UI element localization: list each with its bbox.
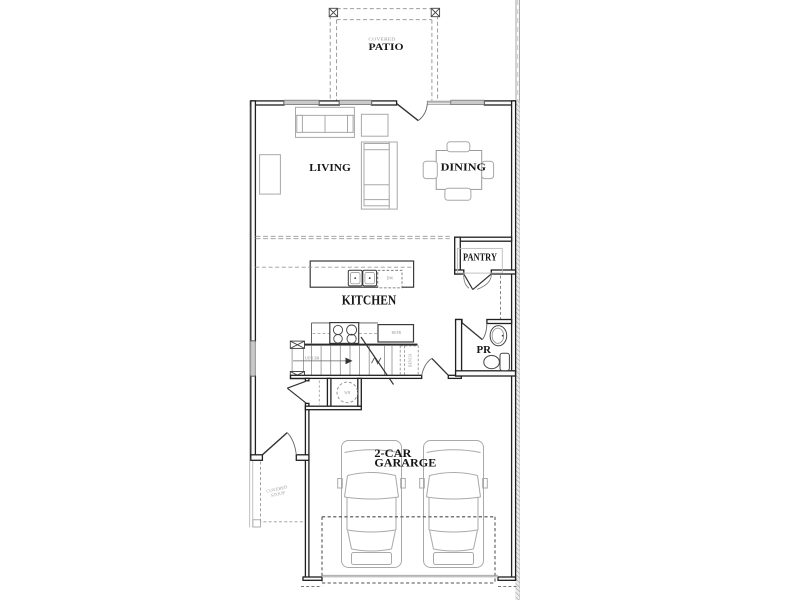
svg-text:WH: WH: [344, 391, 350, 395]
svg-text:PR: PR: [477, 344, 493, 356]
svg-text:KITCHEN: KITCHEN: [342, 292, 397, 307]
svg-text:BENCH: BENCH: [409, 354, 413, 367]
svg-text:PATIO: PATIO: [369, 42, 405, 53]
svg-text:REFR: REFR: [392, 331, 402, 335]
svg-text:LIVING: LIVING: [309, 163, 351, 174]
svg-text:UP 13R: UP 13R: [305, 355, 320, 360]
svg-text:DINING: DINING: [441, 163, 486, 174]
svg-text:PANTRY: PANTRY: [463, 251, 497, 263]
svg-text:DW: DW: [387, 277, 394, 281]
svg-text:COVERED: COVERED: [368, 36, 396, 41]
svg-text:GARARGE: GARARGE: [374, 457, 436, 469]
